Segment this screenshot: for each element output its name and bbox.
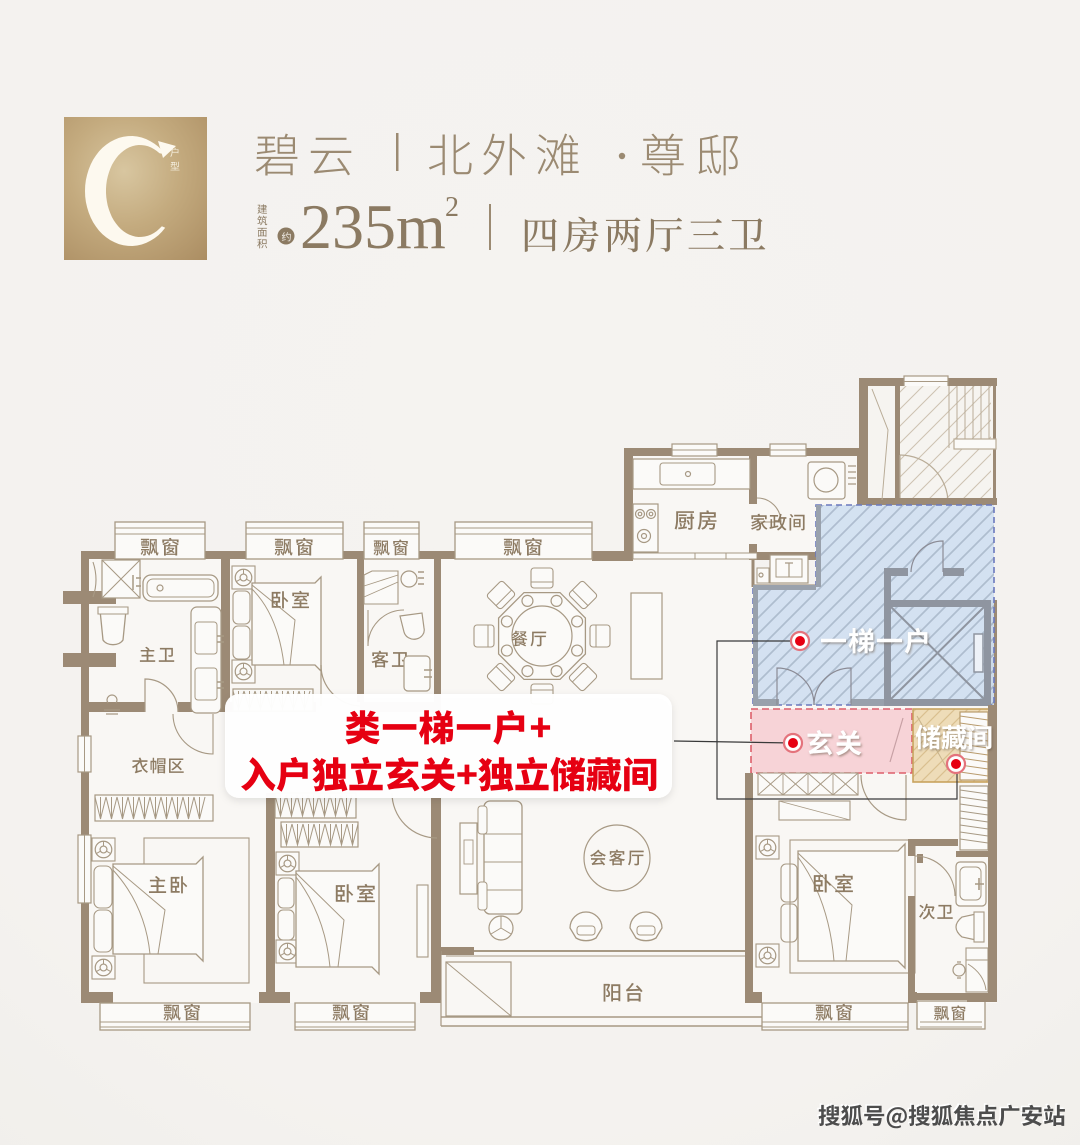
svg-text:235m: 235m: [300, 191, 446, 262]
svg-text:2: 2: [445, 192, 459, 223]
